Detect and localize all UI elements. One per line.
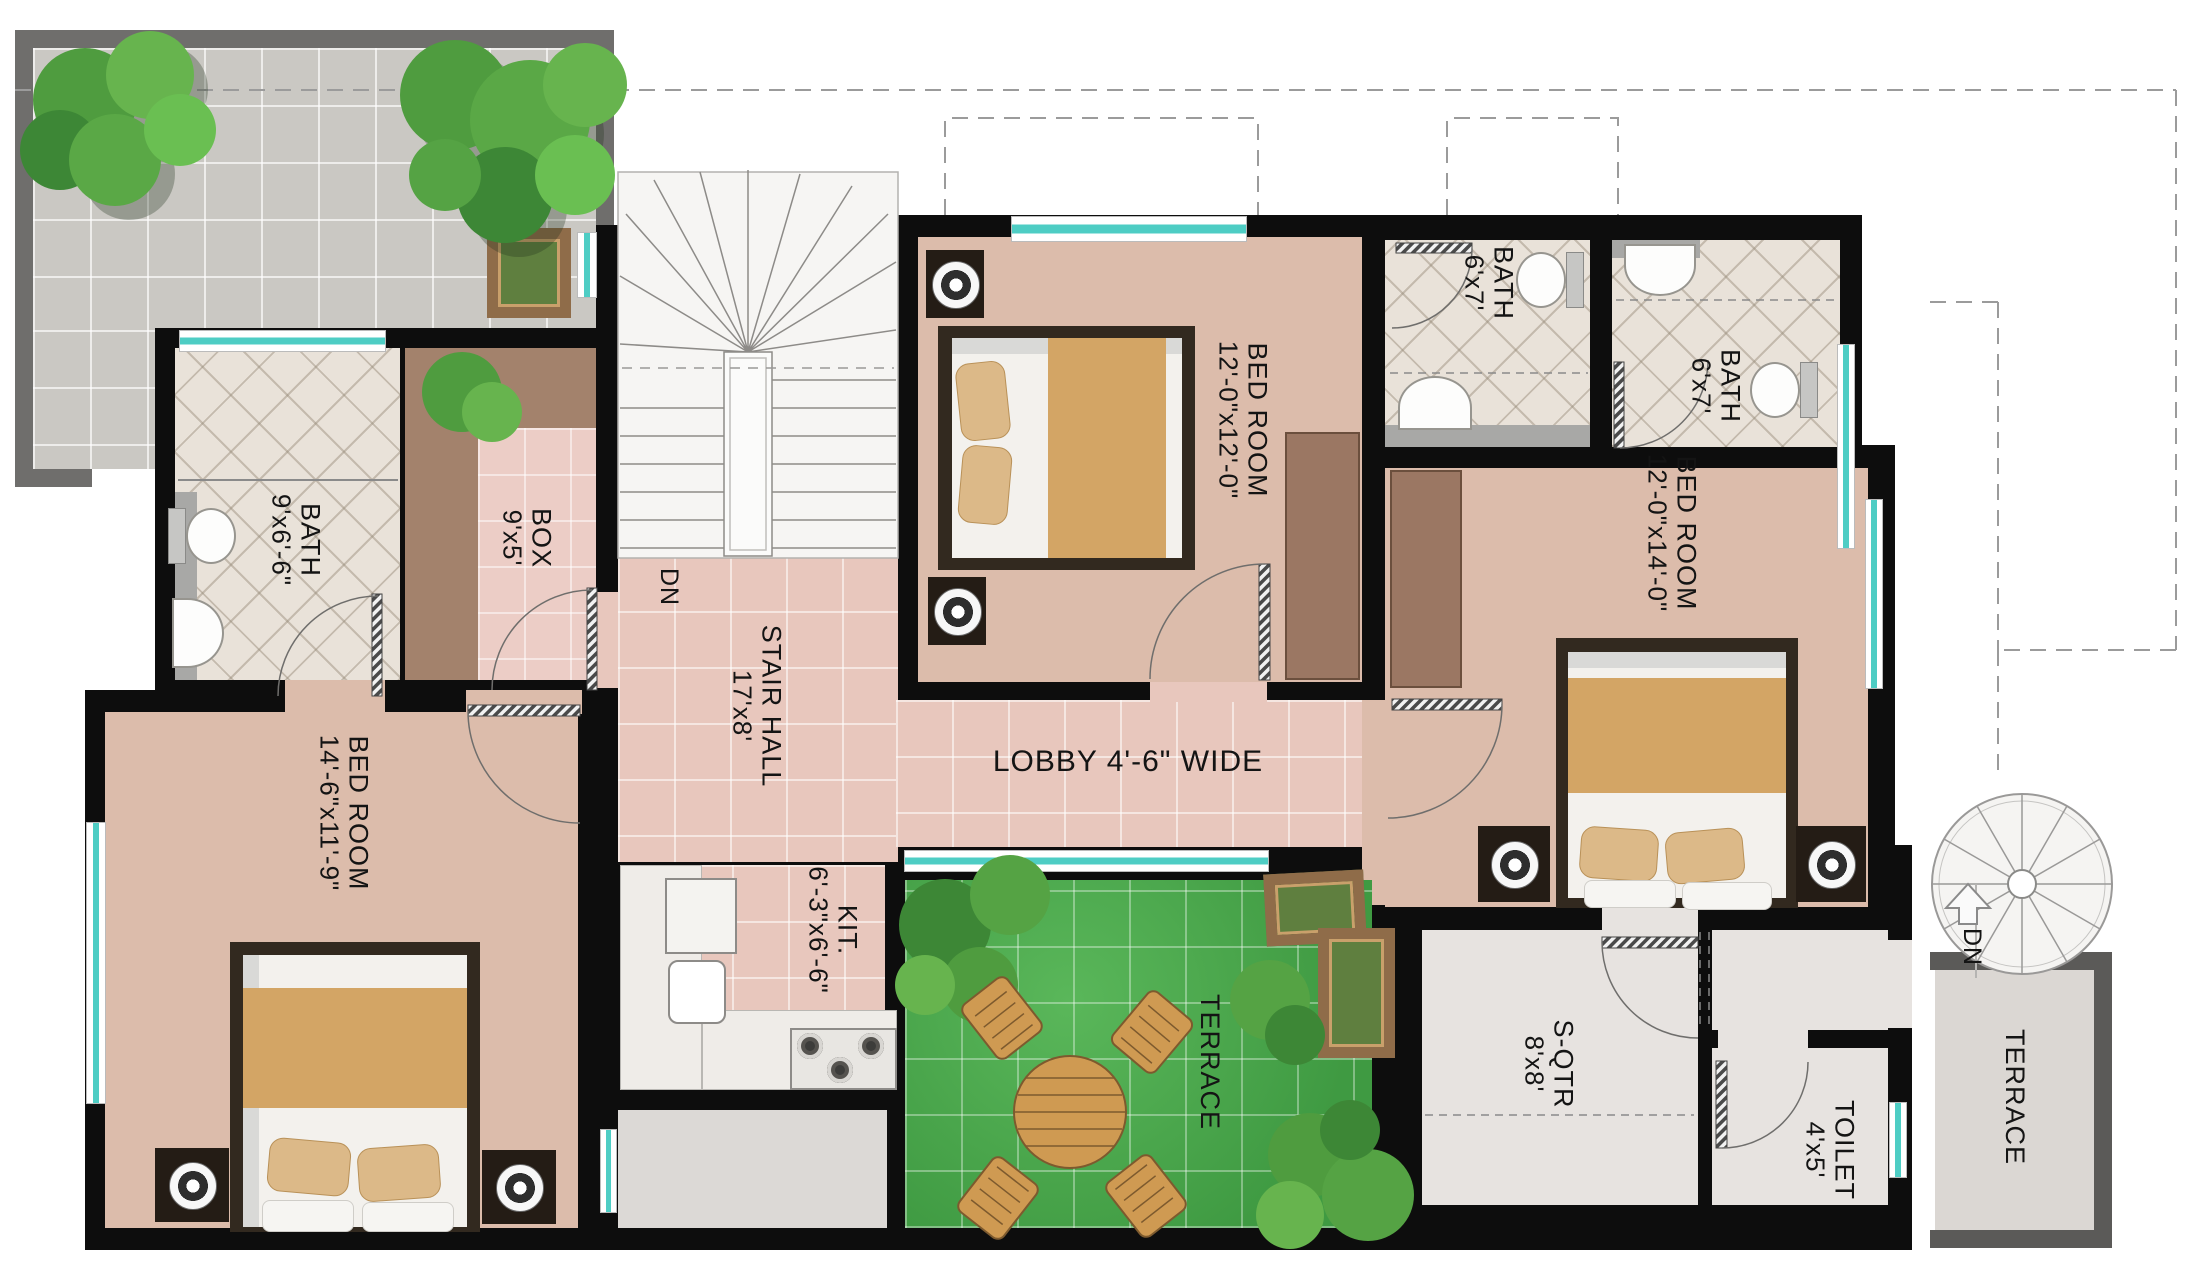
patio-table-icon xyxy=(955,974,1195,1242)
door-arc xyxy=(278,248,1808,1148)
staircase-icon xyxy=(618,170,898,558)
room-label-kitchen: KIT. 6'-3"x6'-6" xyxy=(803,866,862,994)
room-label-box: BOX 9'x5' xyxy=(497,508,556,568)
label-stair-dn: DN xyxy=(655,568,683,606)
room-label-bedroom-right: BED ROOM 12'-0"x14'-0" xyxy=(1642,454,1701,612)
room-label-sqtr: S-QTR 8'x8' xyxy=(1519,1020,1578,1109)
room-label-bedroom-left: BED ROOM 14'-6"x11'-9" xyxy=(314,735,373,892)
room-label-bath-main: BATH 9'x6'-6" xyxy=(266,494,325,586)
room-label-stair-hall: STAIR HALL 17'x8' xyxy=(727,625,786,788)
room-label-bath2: BATH 6'x7' xyxy=(1686,349,1745,423)
room-label-lobby: LOBBY 4'-6" WIDE xyxy=(993,745,1263,779)
floor-plan: BATH 9'x6'-6" BOX 9'x5' STAIR HALL 17'x8… xyxy=(0,0,2204,1283)
room-label-toilet: TOILET 4'x5' xyxy=(1800,1100,1859,1200)
label-spiral-dn: DN xyxy=(1958,928,1986,966)
door-leaf xyxy=(372,243,1727,1148)
boundary-dashed-line xyxy=(15,90,2176,780)
plan-linework xyxy=(0,0,2204,1283)
room-label-bedroom-top: BED ROOM 12'-0"x12'-0" xyxy=(1213,341,1272,499)
room-label-terrace-right: TERRACE xyxy=(2000,1029,2030,1165)
room-label-terrace-inner: TERRACE xyxy=(1195,994,1225,1130)
room-label-bath1: BATH 6'x7' xyxy=(1459,246,1518,320)
